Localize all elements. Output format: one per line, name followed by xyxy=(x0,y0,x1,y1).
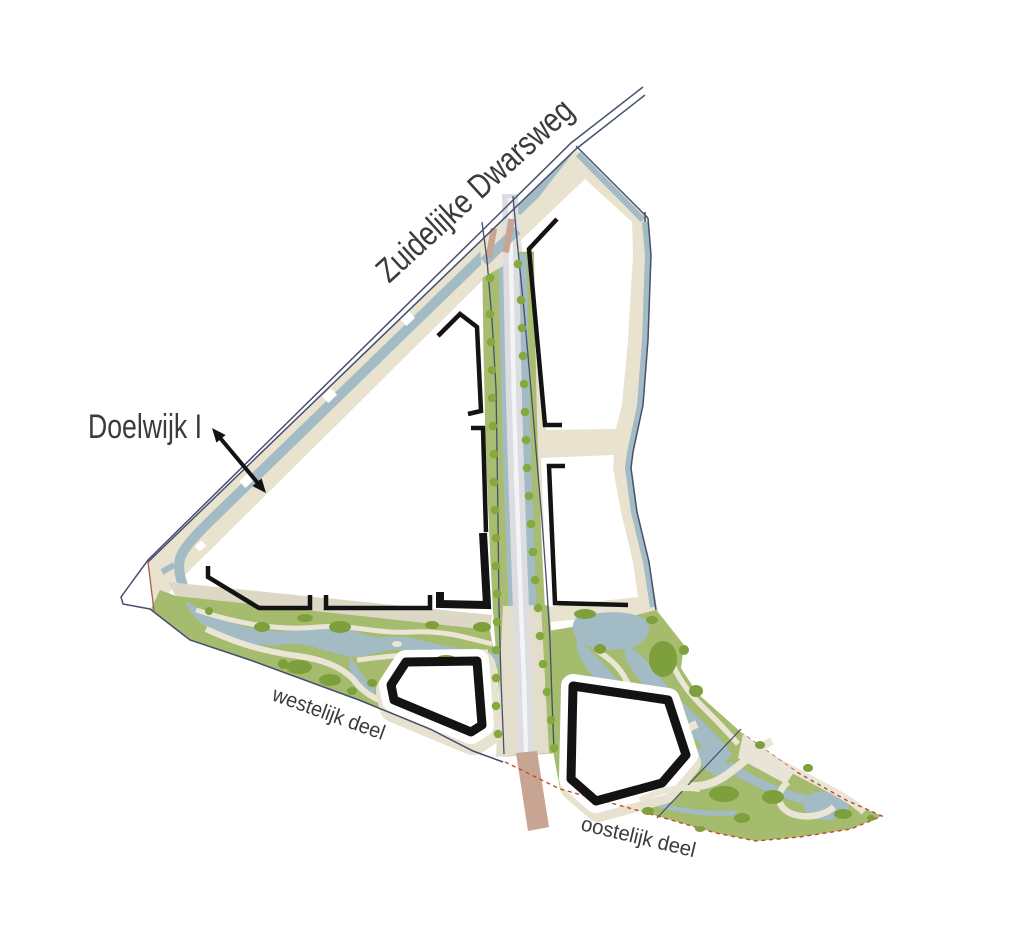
svg-text:Doelwijk I: Doelwijk I xyxy=(88,408,202,446)
